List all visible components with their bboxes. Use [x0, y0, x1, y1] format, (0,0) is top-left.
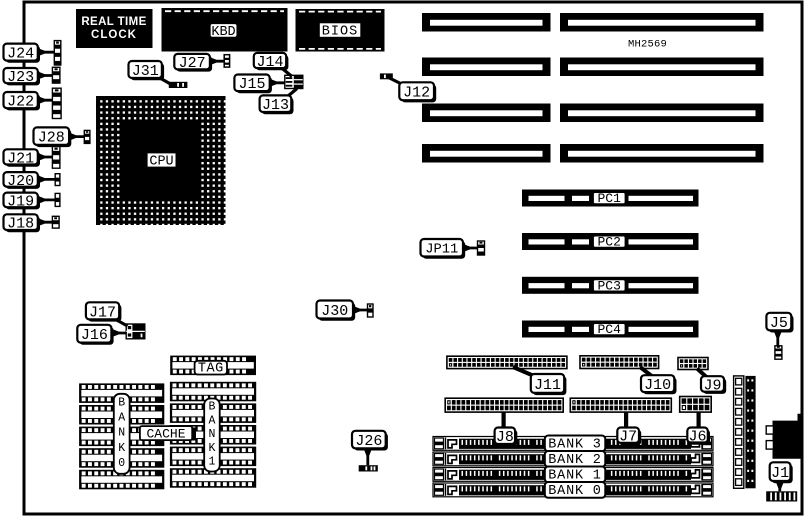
- svg-text:BIOS: BIOS: [322, 24, 358, 39]
- svg-text:J14: J14: [256, 54, 283, 71]
- svg-text:CACHE: CACHE: [146, 426, 185, 441]
- svg-text:J7: J7: [619, 429, 637, 446]
- svg-text:J30: J30: [321, 303, 348, 320]
- svg-text:J31: J31: [132, 63, 159, 80]
- svg-text:JP11: JP11: [425, 243, 458, 258]
- svg-text:J5: J5: [770, 315, 788, 332]
- svg-text:J21: J21: [7, 150, 34, 167]
- svg-text:J26: J26: [355, 433, 382, 450]
- svg-text:J1: J1: [771, 465, 789, 482]
- svg-text:MH2569: MH2569: [628, 39, 667, 51]
- svg-text:CPU: CPU: [149, 154, 173, 169]
- svg-text:J18: J18: [7, 216, 34, 233]
- svg-text:J24: J24: [7, 46, 34, 63]
- svg-text:PC2: PC2: [597, 235, 620, 250]
- svg-text:J23: J23: [7, 69, 34, 86]
- svg-text:BANK 0: BANK 0: [548, 484, 601, 499]
- svg-text:K: K: [118, 442, 125, 455]
- svg-text:TAG: TAG: [198, 362, 224, 377]
- svg-text:1: 1: [209, 456, 216, 469]
- svg-text:A: A: [209, 414, 216, 427]
- svg-text:B: B: [209, 401, 216, 414]
- svg-text:J6: J6: [689, 428, 707, 445]
- svg-text:J13: J13: [262, 97, 289, 114]
- svg-text:K: K: [209, 442, 216, 455]
- svg-text:J12: J12: [403, 85, 430, 102]
- svg-text:A: A: [118, 412, 125, 425]
- svg-text:PC4: PC4: [597, 322, 621, 337]
- svg-text:PC1: PC1: [597, 191, 621, 206]
- svg-text:J19: J19: [7, 193, 34, 210]
- svg-text:J28: J28: [38, 130, 65, 147]
- svg-text:J8: J8: [496, 429, 514, 446]
- svg-text:KBD: KBD: [211, 25, 235, 40]
- svg-text:PC3: PC3: [597, 278, 620, 293]
- svg-text:J17: J17: [89, 304, 116, 321]
- svg-text:CLOCK: CLOCK: [91, 29, 137, 41]
- svg-text:J20: J20: [7, 173, 34, 190]
- svg-text:0: 0: [118, 457, 125, 470]
- svg-text:J11: J11: [534, 377, 561, 394]
- svg-text:J15: J15: [239, 76, 266, 93]
- svg-text:J27: J27: [179, 55, 206, 72]
- svg-text:J16: J16: [81, 327, 108, 344]
- svg-text:N: N: [118, 427, 125, 440]
- svg-text:B: B: [118, 397, 125, 410]
- svg-text:REAL TIME: REAL TIME: [81, 16, 146, 28]
- svg-text:J22: J22: [7, 94, 34, 111]
- svg-text:J10: J10: [644, 377, 671, 394]
- svg-text:J9: J9: [703, 377, 721, 394]
- svg-text:N: N: [209, 428, 216, 441]
